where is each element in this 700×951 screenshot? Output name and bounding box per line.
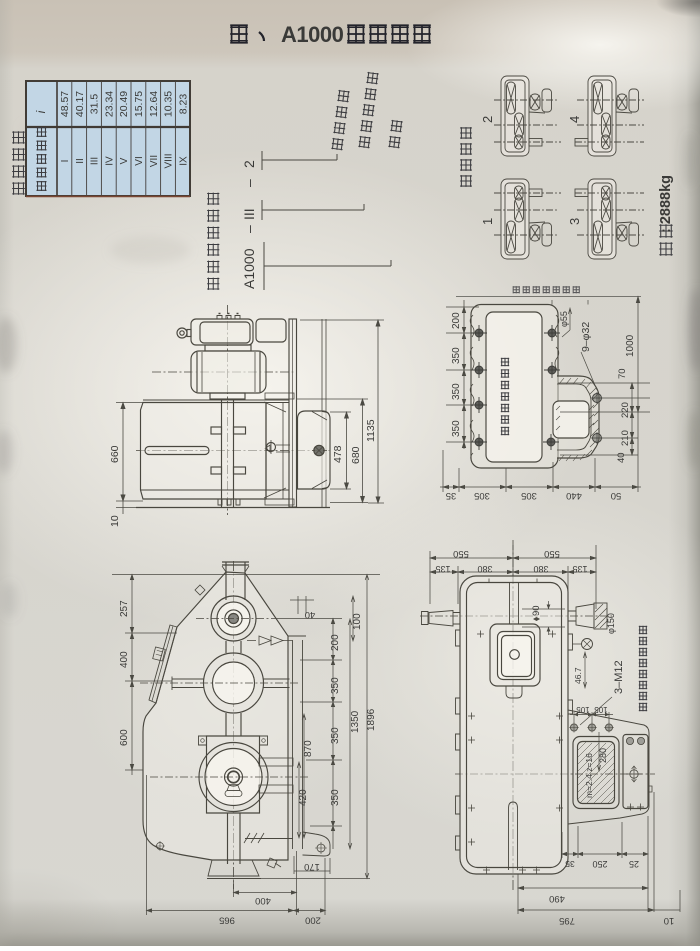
svg-text:m=2.4 z=16: m=2.4 z=16 — [584, 753, 594, 798]
svg-text:10.35: 10.35 — [163, 91, 175, 117]
svg-text:90: 90 — [531, 605, 542, 616]
svg-text:350: 350 — [330, 789, 341, 806]
svg-text:660: 660 — [109, 445, 121, 463]
svg-text:400: 400 — [119, 651, 130, 668]
svg-text:10: 10 — [664, 915, 675, 926]
svg-text:100: 100 — [352, 613, 363, 630]
svg-text:35: 35 — [565, 859, 575, 869]
svg-text:1000: 1000 — [625, 334, 636, 357]
svg-text:VIII: VIII — [164, 153, 175, 168]
svg-text:3: 3 — [567, 218, 582, 225]
svg-text:VII: VII — [149, 155, 160, 167]
svg-text:220: 220 — [620, 402, 631, 418]
svg-text:135: 135 — [435, 564, 450, 574]
svg-text:A1000: A1000 — [241, 248, 257, 289]
svg-text:50: 50 — [611, 490, 622, 501]
svg-text:380: 380 — [533, 564, 548, 574]
svg-text:490: 490 — [549, 893, 565, 904]
svg-text:31.5: 31.5 — [89, 94, 101, 115]
svg-text:350: 350 — [451, 420, 462, 437]
svg-text:305: 305 — [521, 490, 537, 501]
svg-text:200: 200 — [451, 312, 462, 329]
svg-text:250: 250 — [592, 859, 607, 869]
svg-text:440: 440 — [566, 490, 582, 501]
svg-text:II: II — [75, 158, 86, 164]
svg-text:40: 40 — [616, 452, 627, 463]
svg-text:400: 400 — [255, 895, 271, 906]
svg-text:2: 2 — [241, 160, 257, 168]
svg-text:V: V — [119, 157, 130, 164]
svg-text:3–M12: 3–M12 — [613, 660, 625, 694]
svg-text:40.17: 40.17 — [74, 91, 86, 117]
svg-text:20.49: 20.49 — [118, 91, 130, 117]
svg-text:420: 420 — [298, 789, 309, 806]
svg-text:4: 4 — [567, 116, 582, 123]
svg-text:25: 25 — [629, 859, 639, 869]
svg-text:200: 200 — [330, 634, 341, 651]
svg-text:I: I — [60, 160, 71, 163]
svg-text:350: 350 — [451, 347, 462, 364]
svg-text:795: 795 — [559, 915, 575, 926]
svg-text:550: 550 — [544, 548, 560, 559]
svg-text:1135: 1135 — [365, 419, 377, 442]
svg-text:23.34: 23.34 — [103, 91, 115, 117]
svg-text:VI: VI — [134, 156, 145, 165]
svg-text:200: 200 — [305, 915, 321, 926]
svg-text:1: 1 — [480, 218, 495, 225]
svg-text:A1000: A1000 — [281, 22, 344, 47]
svg-text:965: 965 — [219, 915, 235, 926]
svg-text:2: 2 — [480, 116, 495, 123]
svg-text:8.23: 8.23 — [177, 94, 189, 115]
svg-text:380: 380 — [477, 564, 492, 574]
svg-text:350: 350 — [330, 677, 341, 694]
svg-text:350: 350 — [330, 727, 341, 744]
svg-text:46.7: 46.7 — [573, 667, 583, 684]
svg-text:10: 10 — [109, 515, 121, 527]
svg-text:1350: 1350 — [350, 710, 361, 733]
svg-text:105: 105 — [594, 705, 608, 714]
svg-text:φ55: φ55 — [559, 311, 569, 327]
svg-text:15.75: 15.75 — [133, 91, 145, 117]
svg-text:478: 478 — [332, 445, 344, 463]
svg-text:70: 70 — [617, 368, 628, 379]
svg-text:–: – — [241, 179, 257, 187]
svg-text:–: – — [241, 225, 257, 233]
svg-text:550: 550 — [453, 548, 469, 559]
svg-text:600: 600 — [119, 729, 130, 746]
svg-text:IV: IV — [104, 156, 115, 166]
svg-text:135: 135 — [572, 564, 587, 574]
svg-text:IX: IX — [178, 156, 189, 166]
svg-text:III: III — [90, 157, 101, 165]
svg-text:35: 35 — [446, 490, 457, 501]
svg-text:257: 257 — [119, 600, 130, 617]
svg-text:170: 170 — [304, 861, 320, 872]
svg-text:280: 280 — [598, 748, 608, 763]
svg-text:9–φ32: 9–φ32 — [580, 322, 592, 352]
svg-text:i: i — [34, 110, 48, 113]
svg-text:210: 210 — [620, 430, 631, 446]
svg-text:680: 680 — [350, 446, 362, 464]
svg-text:12.64: 12.64 — [148, 91, 160, 117]
svg-text:III: III — [241, 208, 257, 220]
svg-text:φ150: φ150 — [606, 613, 616, 634]
svg-text:350: 350 — [451, 383, 462, 400]
svg-text:105: 105 — [576, 705, 590, 714]
svg-text:: 2888kg: : 2888kg — [658, 175, 674, 233]
svg-text:870: 870 — [303, 740, 314, 757]
svg-text:305: 305 — [474, 490, 490, 501]
svg-text:1896: 1896 — [366, 708, 377, 731]
svg-text:48.57: 48.57 — [59, 91, 71, 117]
